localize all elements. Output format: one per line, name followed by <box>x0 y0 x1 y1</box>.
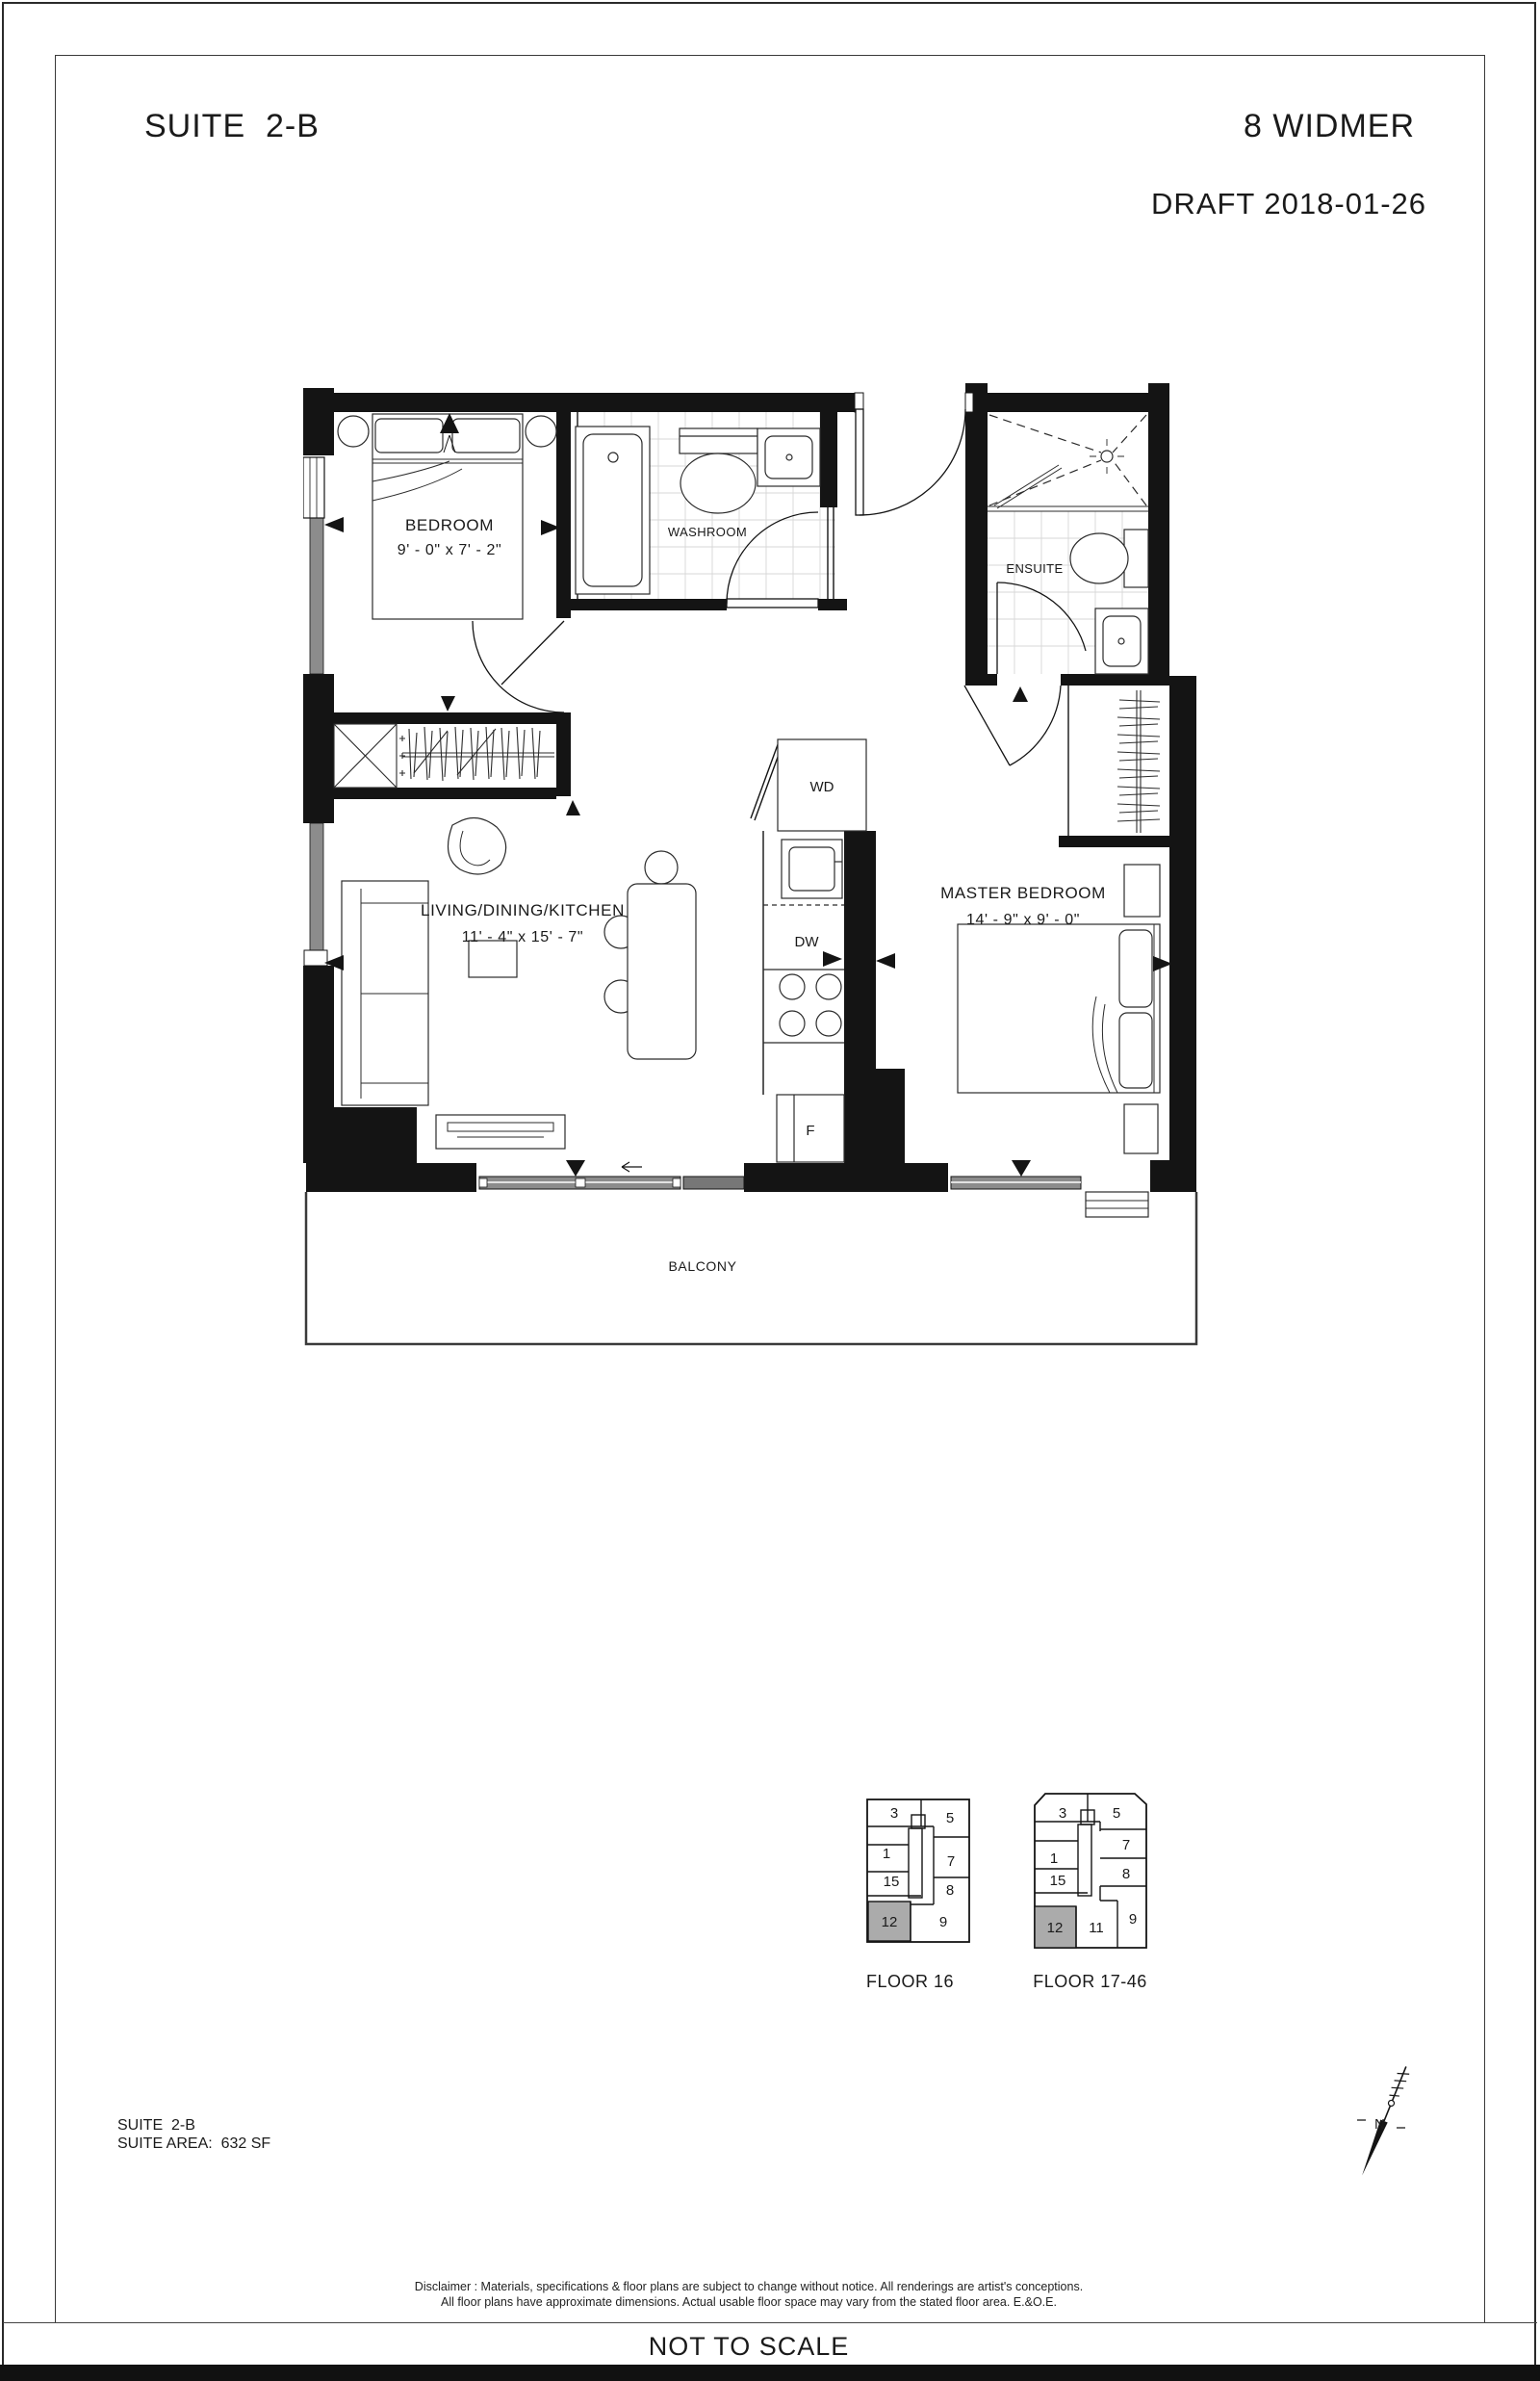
unit-number: 8 <box>946 1882 954 1899</box>
keyplan-floor-17-46: 3 5 1 7 15 8 12 11 9 <box>1033 1793 1147 1950</box>
floor-plan: BEDROOM 9' - 0" x 7' - 2" WASHROOM ENSUI… <box>303 380 1208 1353</box>
living-furniture <box>342 818 696 1149</box>
bottom-bar <box>0 2365 1540 2381</box>
keyplan-floor16-label: FLOOR 16 <box>845 1972 975 1992</box>
entry-door-leaf <box>856 409 863 515</box>
unit-number: 7 <box>1122 1837 1130 1853</box>
unit-number: 9 <box>939 1914 947 1930</box>
bedroom-dims: 9' - 0" x 7' - 2" <box>398 542 502 558</box>
slide-direction-arrow <box>622 1162 642 1172</box>
disclaimer-line2: All floor plans have approximate dimensi… <box>0 2295 1498 2311</box>
bedroom-label: BEDROOM <box>405 516 494 534</box>
nightstand <box>1124 1104 1158 1153</box>
master-dims: 14' - 9" x 9' - 0" <box>966 912 1080 928</box>
fridge-label: F <box>806 1123 814 1139</box>
unit-number-highlighted: 12 <box>1047 1920 1064 1936</box>
not-to-scale-label: NOT TO SCALE <box>0 2332 1498 2362</box>
washroom-label: WASHROOM <box>668 525 747 539</box>
stove-burner <box>780 1011 805 1036</box>
unit-number: 5 <box>946 1810 954 1826</box>
disclaimer-line1: Disclaimer : Materials, specifications &… <box>0 2280 1498 2295</box>
wd-label: WD <box>810 779 834 795</box>
shower <box>989 415 1146 505</box>
washroom-sink <box>757 428 820 486</box>
ensuite-fixtures <box>988 415 1148 674</box>
unit-number: 1 <box>883 1846 890 1862</box>
unit-number: 9 <box>1129 1911 1137 1928</box>
keyplan-floor-16: 3 5 1 7 15 8 12 9 <box>866 1799 970 1943</box>
balcony-outline <box>306 1192 1196 1344</box>
keyplan-floor17-46-label: FLOOR 17-46 <box>1011 1972 1169 1992</box>
unit-number: 15 <box>1050 1873 1066 1889</box>
unit-number: 5 <box>1113 1805 1120 1822</box>
suite-info-block: SUITE 2-BSUITE AREA: 632 SF <box>117 2116 270 2153</box>
disclaimer: Disclaimer : Materials, specifications &… <box>0 2280 1498 2310</box>
stove-burner <box>816 1011 841 1036</box>
building-title: 8 WIDMER <box>1244 108 1415 145</box>
stove-burner <box>816 974 841 999</box>
toilet-tank <box>680 428 757 453</box>
nightstand <box>526 416 556 447</box>
master-closet <box>1117 690 1160 833</box>
unit-number: 15 <box>884 1874 900 1890</box>
living-label: LIVING/DINING/KITCHEN <box>421 901 625 919</box>
bedroom-window <box>303 457 324 518</box>
room-labels: BEDROOM 9' - 0" x 7' - 2" WASHROOM ENSUI… <box>398 516 1106 1274</box>
bathtub <box>576 427 650 594</box>
suite-info-label: SUITE 2-B <box>117 2117 195 2134</box>
north-arrow: N <box>1346 2058 1423 2184</box>
nightstand <box>338 416 369 447</box>
unit-number: 1 <box>1050 1850 1058 1867</box>
master-bed <box>958 924 1160 1093</box>
unit-number: 3 <box>890 1805 898 1822</box>
unit-number: 7 <box>947 1853 955 1870</box>
unit-number: 8 <box>1122 1866 1130 1882</box>
footer-rule <box>3 2322 1537 2323</box>
kitchen-sink <box>782 840 842 898</box>
toilet-bowl <box>680 453 756 513</box>
washroom-fixtures <box>576 427 820 594</box>
bedroom-door-leaf <box>501 621 564 685</box>
ensuite-label: ENSUITE <box>1006 561 1063 576</box>
unit-number: 11 <box>1089 1920 1104 1936</box>
stove-burner <box>780 974 805 999</box>
draft-date: DRAFT 2018-01-26 <box>1151 187 1426 221</box>
master-furniture <box>958 865 1160 1153</box>
master-label: MASTER BEDROOM <box>940 884 1106 902</box>
washroom-door-leaf <box>727 599 818 608</box>
unit-number: 3 <box>1059 1805 1066 1822</box>
suite-area-label: SUITE AREA: 632 SF <box>117 2135 270 2152</box>
living-dims: 11' - 4" x 15' - 7" <box>462 929 583 945</box>
north-needle-north <box>1384 2066 1406 2121</box>
ensuite-toilet-bowl <box>1070 533 1128 583</box>
entry-door-arc <box>860 409 965 515</box>
nightstand <box>1124 865 1160 917</box>
unit-number-highlighted: 12 <box>882 1914 898 1930</box>
balcony-swing-door <box>1086 1192 1148 1217</box>
bedroom-closet <box>334 724 554 788</box>
dining-table <box>628 884 696 1059</box>
dining-chair <box>645 851 678 884</box>
dw-label: DW <box>795 934 820 950</box>
suite-title: SUITE 2-B <box>144 108 320 145</box>
north-label: N <box>1374 2116 1385 2133</box>
master-door-leaf <box>964 686 1010 765</box>
coffee-table <box>469 941 517 977</box>
balcony-label: BALCONY <box>668 1258 736 1274</box>
